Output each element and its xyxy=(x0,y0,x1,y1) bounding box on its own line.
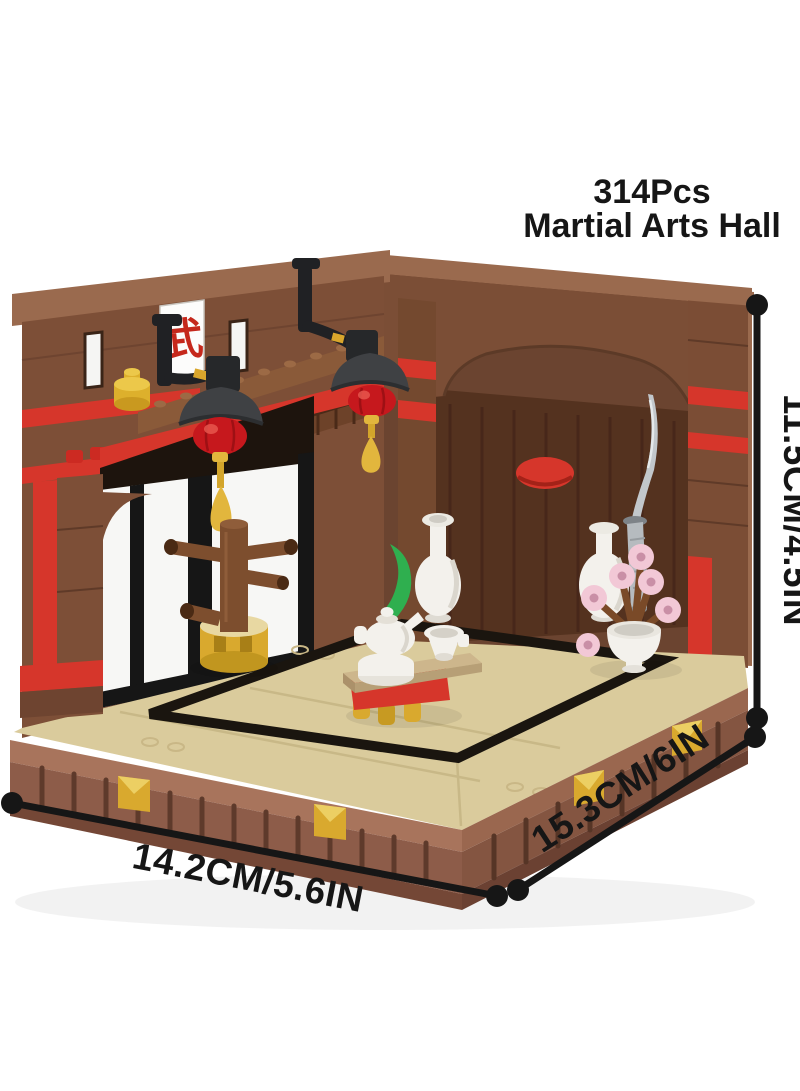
lantern-mount xyxy=(206,356,240,392)
product-title: Martial Arts Hall xyxy=(523,207,781,245)
header: 314Pcs Martial Arts Hall xyxy=(523,173,781,245)
tassel-cap xyxy=(364,415,379,424)
dummy-base-slot xyxy=(214,636,226,652)
tassel-cap xyxy=(212,452,228,462)
dummy-post-top xyxy=(220,519,248,529)
dim-dot xyxy=(486,885,508,907)
lantern-bracket-hook xyxy=(292,258,320,269)
pot-mouth xyxy=(614,624,654,636)
red-stud xyxy=(66,450,83,463)
red-lantern xyxy=(193,417,247,455)
dummy-base-bottom xyxy=(200,651,268,673)
pot-foot xyxy=(622,665,646,673)
lantern-highlight xyxy=(204,424,218,434)
teacup-mouth xyxy=(430,628,458,638)
tea-tray xyxy=(358,653,414,675)
flower-vase-neck xyxy=(596,530,612,560)
shoji-bar xyxy=(298,452,314,666)
teacup-foot xyxy=(435,653,453,661)
dim-dot xyxy=(744,726,766,748)
window-slot xyxy=(85,332,102,388)
corner-pillar-red xyxy=(33,480,57,670)
gold-stud xyxy=(314,804,346,840)
dim-dot xyxy=(1,792,23,814)
dummy-arm-end xyxy=(277,576,289,590)
vase-mouth xyxy=(429,515,447,523)
tassel-link xyxy=(217,462,224,488)
lantern-bracket-hook xyxy=(152,314,182,326)
lantern-highlight xyxy=(358,391,370,400)
shoji-bar xyxy=(130,484,144,702)
flower-vase-rim xyxy=(589,522,619,534)
dummy-arm-end xyxy=(164,539,178,555)
teapot-handle xyxy=(354,626,367,644)
dim-height-label: 11.5CM/4.5IN xyxy=(776,394,800,626)
dummy-leg-end xyxy=(180,603,194,619)
red-lantern xyxy=(348,385,396,417)
product-dimension-image: 314Pcs Martial Arts Hall 龍 神 xyxy=(0,0,800,1091)
gold-stud xyxy=(118,776,150,812)
piece-count: 314Pcs xyxy=(593,173,710,211)
dummy-arm-end xyxy=(284,539,298,555)
martial-arts-hall-scene: 314Pcs Martial Arts Hall 龍 神 xyxy=(0,0,800,1091)
teapot-knob xyxy=(381,607,394,617)
dim-dot xyxy=(746,707,768,729)
vase-neck xyxy=(430,522,446,556)
tassel-link xyxy=(368,424,375,438)
dim-height: 11.5CM/4.5IN xyxy=(746,294,800,729)
dummy-post xyxy=(220,524,248,632)
dummy-base-slot xyxy=(240,636,252,652)
dim-dot xyxy=(507,879,529,901)
right-pillar-red-strip xyxy=(688,556,712,664)
dim-dot xyxy=(746,294,768,316)
